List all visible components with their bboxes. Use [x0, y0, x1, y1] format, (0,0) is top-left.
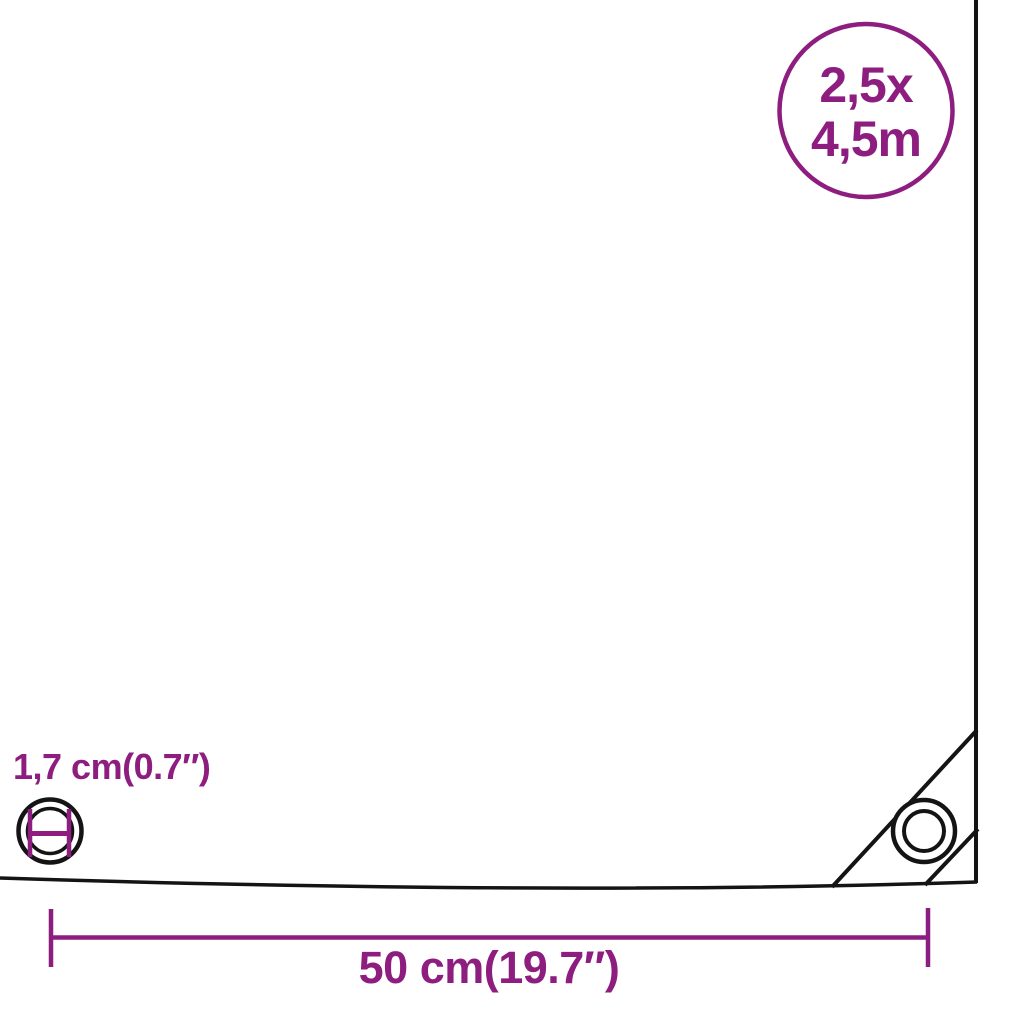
size-badge-length: 4,5m: [779, 112, 953, 166]
grommet-diameter-label: 1,7 cm(0.7″): [13, 749, 210, 785]
grommet-diameter-icon: [19, 800, 82, 863]
size-badge-width: 2,5x: [779, 58, 953, 112]
corner-grommet-inner-ring: [904, 811, 944, 851]
tarp-bottom-edge-line: [0, 878, 977, 888]
corner-grommet-icon: [893, 800, 955, 862]
edge-distance-label: 50 cm(19.7″): [0, 945, 978, 990]
size-badge: 2,5x 4,5m: [779, 58, 953, 166]
product-diagram: 2,5x 4,5m 1,7 cm(0.7″) 50 cm(19.7″): [0, 0, 1024, 1024]
